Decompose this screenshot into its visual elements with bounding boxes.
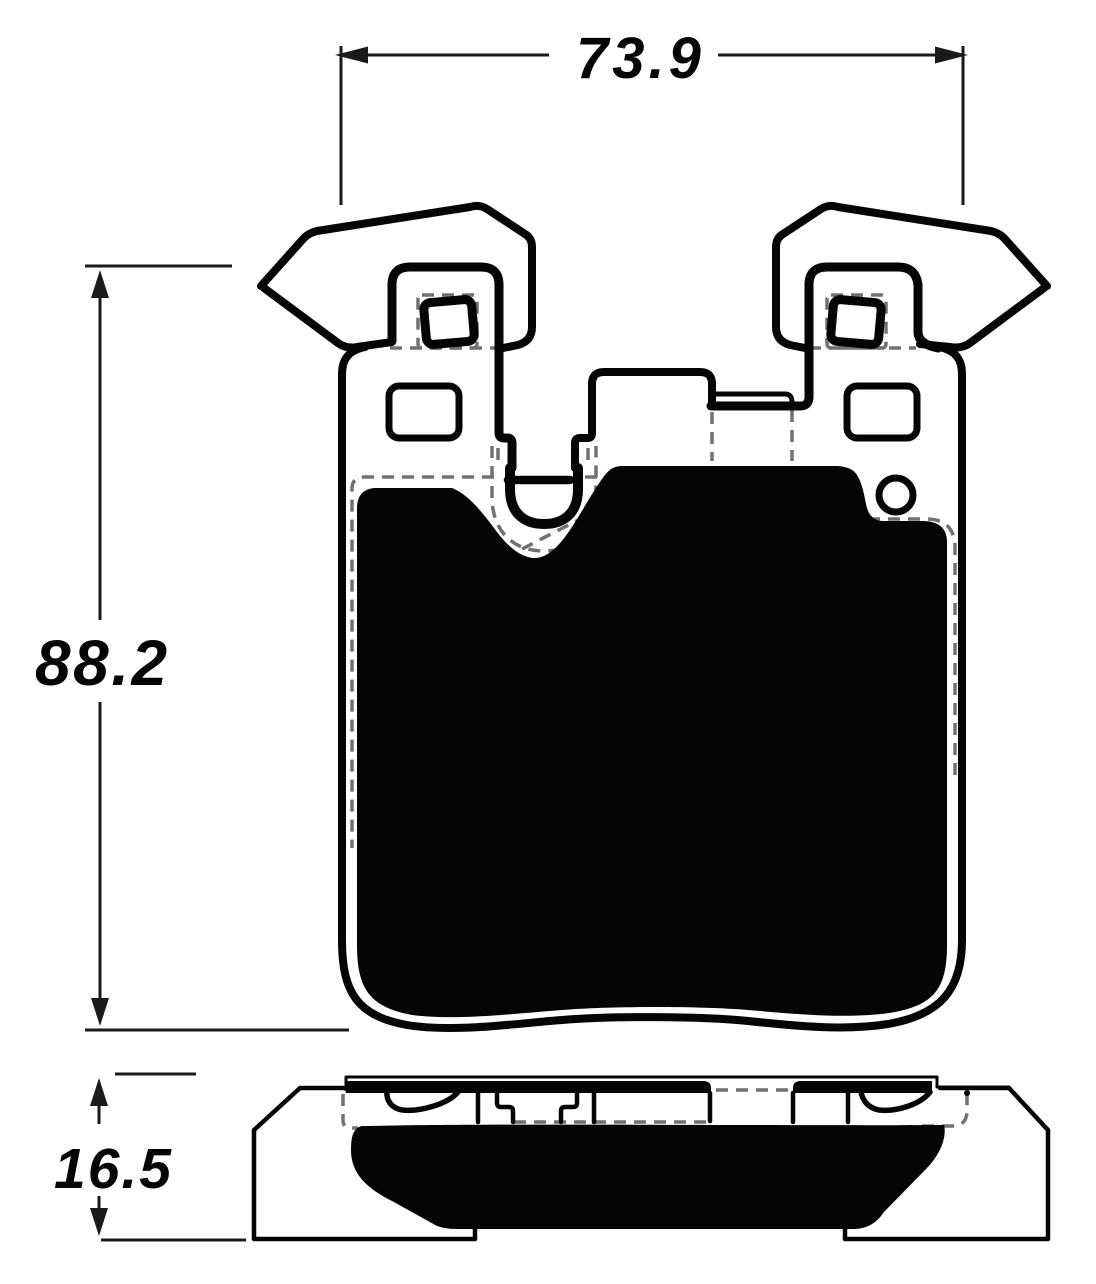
svg-text:88.2: 88.2 — [35, 627, 170, 699]
svg-text:73.9: 73.9 — [576, 26, 705, 91]
svg-text:16.5: 16.5 — [54, 1137, 173, 1201]
